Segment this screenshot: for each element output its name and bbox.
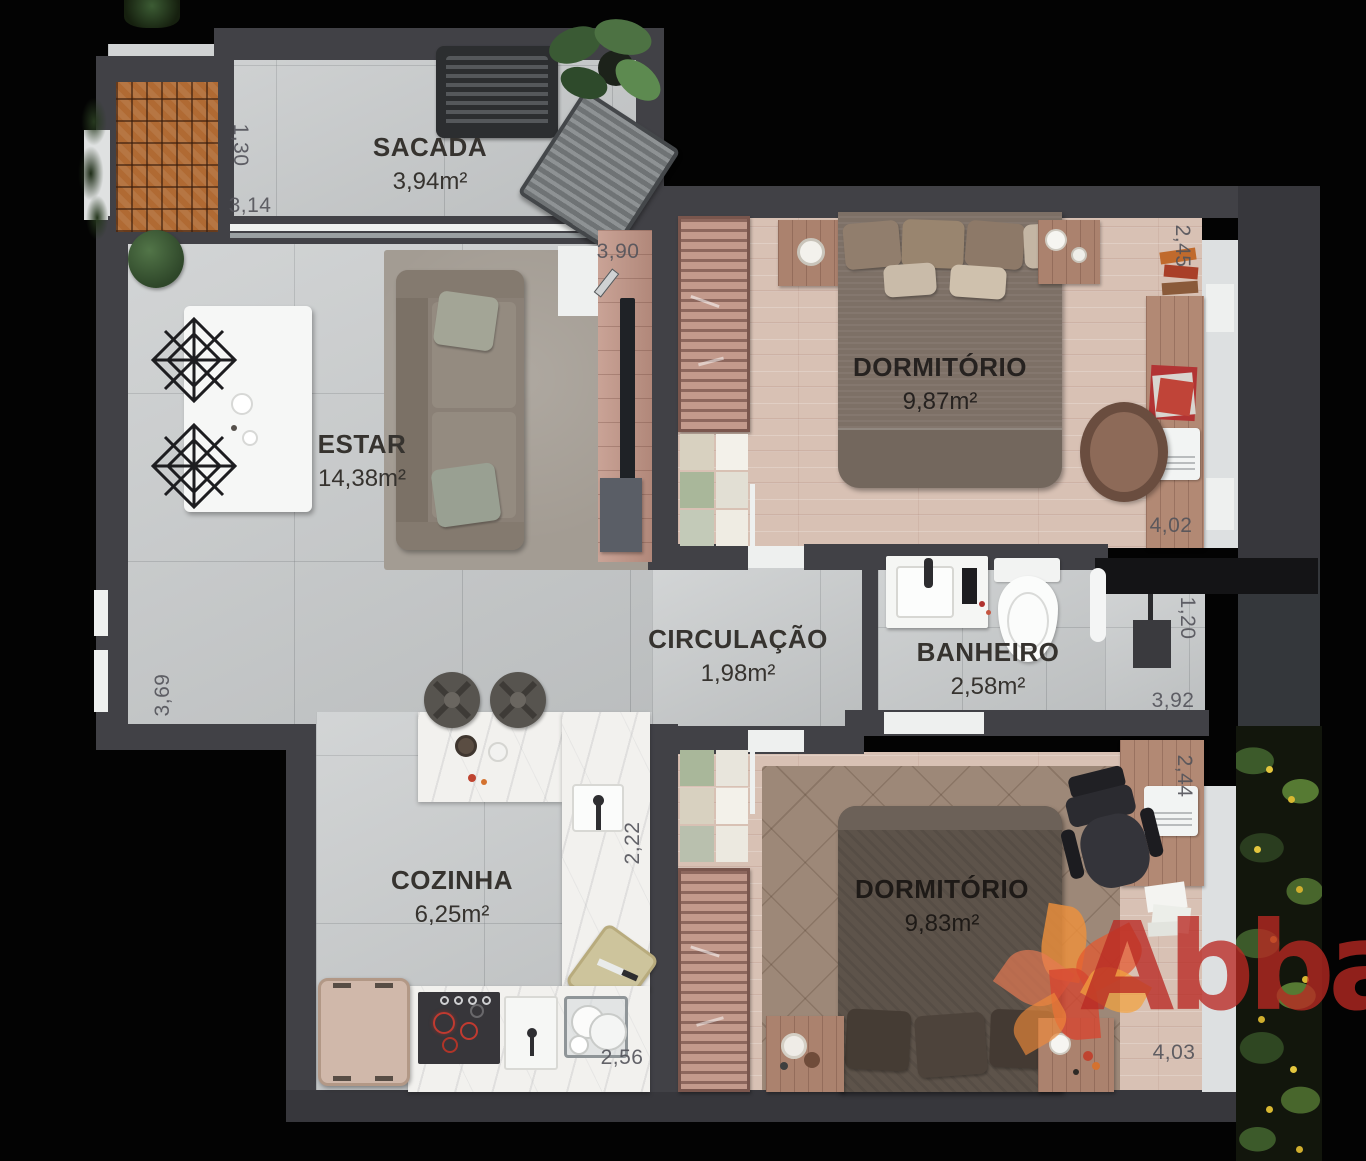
plate xyxy=(569,1035,589,1055)
floor-plan: SACADA 3,94m² ESTAR 14,38m² DORMITÓRIO 9… xyxy=(0,0,1366,1161)
room-label-sacada: SACADA 3,94m² xyxy=(373,132,487,196)
cosmetics-dot xyxy=(979,601,985,607)
table-vase xyxy=(242,430,258,446)
room-name: BANHEIRO xyxy=(917,637,1060,668)
window-sill xyxy=(1206,478,1234,530)
desk-chair xyxy=(1080,402,1168,502)
dimension-label: 2,44 xyxy=(1172,755,1196,798)
dimension-label: 2,56 xyxy=(601,1046,644,1070)
sliding-door-track xyxy=(230,233,598,238)
dimension-label: 3,92 xyxy=(1152,689,1195,713)
garden-flowers xyxy=(1266,766,1273,773)
plant xyxy=(546,20,662,128)
brand-watermark-text: Abba xyxy=(1080,906,1366,1028)
wardrobe xyxy=(678,216,750,432)
decor-bowl xyxy=(1071,247,1087,263)
pillow xyxy=(842,220,902,271)
storage-box xyxy=(716,750,748,786)
pillow xyxy=(430,462,501,528)
dimension-label: 1,20 xyxy=(1175,597,1199,640)
bench-slats xyxy=(446,56,548,128)
wardrobe xyxy=(678,868,750,1092)
pillow xyxy=(964,220,1026,271)
wall xyxy=(862,566,878,716)
plant xyxy=(124,0,180,28)
storage-box xyxy=(716,788,748,824)
door-leaf xyxy=(750,752,755,814)
knife-handle xyxy=(621,969,638,981)
storage-box xyxy=(680,788,714,824)
door-opening xyxy=(748,730,804,752)
door-opening xyxy=(884,712,984,734)
prep-faucet-base xyxy=(593,795,604,806)
decor-dot xyxy=(780,1062,788,1070)
burner xyxy=(442,1037,458,1053)
burner xyxy=(470,1004,484,1018)
shower-recess xyxy=(1095,558,1318,594)
fridge-handle xyxy=(333,1076,351,1081)
window-sill xyxy=(1206,284,1234,332)
table-lamp xyxy=(797,238,825,266)
decor-plate xyxy=(781,1033,807,1059)
sink-faucet-base xyxy=(527,1028,537,1038)
sliding-door xyxy=(230,224,598,231)
refrigerator xyxy=(318,978,410,1086)
window xyxy=(94,650,108,712)
fridge-handle xyxy=(375,1076,393,1081)
storage-box xyxy=(716,826,748,862)
plant xyxy=(128,230,184,288)
table-lamp xyxy=(1045,229,1067,251)
room-area: 1,98m² xyxy=(648,660,828,688)
shower-glass xyxy=(1090,568,1106,642)
nightstand xyxy=(1038,220,1100,284)
bathroom-faucet xyxy=(924,558,933,588)
wall xyxy=(648,724,678,1092)
room-label-banheiro: BANHEIRO 2,58m² xyxy=(917,637,1060,701)
plant xyxy=(78,92,110,240)
balcony-bench xyxy=(436,46,558,138)
pillow xyxy=(844,1008,911,1071)
door-opening xyxy=(748,546,804,568)
bed xyxy=(838,212,1062,488)
book xyxy=(1162,281,1199,295)
magazine xyxy=(1156,378,1194,416)
dimension-label: 3,69 xyxy=(151,674,175,717)
room-name: CIRCULAÇÃO xyxy=(648,624,828,655)
bed-head-fold xyxy=(838,806,1062,830)
fridge-handle xyxy=(375,983,393,988)
dimension-label: 2,22 xyxy=(621,822,645,865)
room-area: 14,38m² xyxy=(318,465,407,493)
dimension-label: 3,90 xyxy=(597,240,640,264)
room-area: 3,94m² xyxy=(373,168,487,196)
shower-fixture xyxy=(1148,594,1153,622)
brand-watermark: Abba xyxy=(1000,900,1366,1060)
window xyxy=(94,590,108,636)
dimension-label: 1,30 xyxy=(228,124,252,167)
kitchen-sink xyxy=(504,996,558,1070)
cooktop xyxy=(418,992,500,1064)
sideboard xyxy=(558,246,598,316)
shower-bench xyxy=(1133,620,1171,668)
decor-flower xyxy=(468,774,476,782)
pillow xyxy=(883,262,937,298)
dining-chair-wireframe xyxy=(150,316,238,404)
pillow xyxy=(433,290,500,352)
burner xyxy=(433,1012,455,1034)
decor-plate xyxy=(488,742,508,762)
storage-box xyxy=(716,434,748,470)
bar-stool xyxy=(490,672,546,728)
wall xyxy=(286,1090,1320,1122)
room-area: 2,58m² xyxy=(917,673,1060,701)
wall xyxy=(1238,186,1320,560)
storage-box xyxy=(680,826,714,862)
sofa xyxy=(396,270,524,550)
stool-seat xyxy=(510,692,526,708)
storage-box xyxy=(716,510,748,546)
tv-cabinet xyxy=(600,478,642,552)
wall xyxy=(648,186,678,570)
door-leaf xyxy=(750,484,755,546)
cooktop-knob xyxy=(454,996,463,1005)
tv xyxy=(620,298,635,482)
storage-box xyxy=(680,510,714,546)
room-area: 6,25m² xyxy=(391,901,513,929)
room-label-estar: ESTAR 14,38m² xyxy=(318,429,407,493)
sofa-armrest xyxy=(396,522,524,550)
storage-box xyxy=(680,434,714,470)
cooktop-knob xyxy=(440,996,449,1005)
pillow xyxy=(949,264,1007,300)
sofa-back xyxy=(396,276,428,544)
cosmetics xyxy=(962,568,977,604)
pillow xyxy=(914,1012,988,1079)
dimension-label: 4,02 xyxy=(1150,514,1193,538)
decor-bowl xyxy=(455,735,477,757)
barbecue-grill xyxy=(116,82,218,232)
wall xyxy=(96,724,290,750)
cosmetics-dot xyxy=(986,610,991,615)
burner xyxy=(460,1022,478,1040)
wall xyxy=(648,544,748,570)
room-label-circulacao: CIRCULAÇÃO 1,98m² xyxy=(648,624,828,688)
decor-flower xyxy=(481,779,487,785)
decor-flower xyxy=(1092,1062,1100,1070)
fridge-handle xyxy=(333,983,351,988)
room-name: ESTAR xyxy=(318,429,407,460)
bed-foot-fold xyxy=(838,428,1062,488)
decor-bowl xyxy=(804,1052,820,1068)
wall xyxy=(286,724,316,1116)
room-name: DORMITÓRIO xyxy=(853,352,1027,383)
room-name: SACADA xyxy=(373,132,487,163)
storage-box xyxy=(680,472,714,508)
stool-seat xyxy=(444,692,460,708)
dimension-label: 3,14 xyxy=(229,194,272,218)
cooktop-knob xyxy=(482,996,491,1005)
bar-stool xyxy=(424,672,480,728)
room-name: COZINHA xyxy=(391,865,513,896)
storage-box xyxy=(716,472,748,508)
leaf xyxy=(591,13,656,60)
dimension-label: 2,45 xyxy=(1170,225,1194,268)
room-label-dormitorio-1: DORMITÓRIO 9,87m² xyxy=(853,352,1027,416)
decor-dot xyxy=(1073,1069,1079,1075)
magazine-stack xyxy=(1150,366,1198,422)
room-area: 9,87m² xyxy=(853,388,1027,416)
pillow xyxy=(901,219,965,269)
room-label-cozinha: COZINHA 6,25m² xyxy=(391,865,513,929)
storage-box xyxy=(680,750,714,786)
dining-chair-wireframe xyxy=(150,422,238,510)
